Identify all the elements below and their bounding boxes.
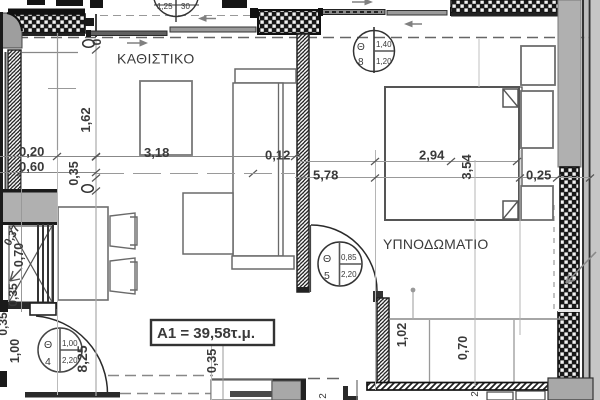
svg-text:1,20: 1,20	[376, 57, 392, 66]
svg-text:0,70: 0,70	[12, 243, 26, 267]
svg-text:0,20: 0,20	[19, 144, 44, 159]
svg-text:0,35: 0,35	[205, 349, 219, 373]
svg-text:ΚΑΘΙΣΤΙΚΟ: ΚΑΘΙΣΤΙΚΟ	[117, 51, 195, 67]
svg-text:5,78: 5,78	[313, 168, 338, 183]
svg-text:4: 4	[45, 356, 51, 368]
svg-text:0,60: 0,60	[19, 159, 44, 174]
svg-text:Θ: Θ	[44, 339, 52, 351]
svg-text:8: 8	[358, 57, 364, 68]
svg-text:2,94: 2,94	[419, 148, 445, 163]
svg-text:3,18: 3,18	[144, 145, 169, 160]
svg-text:0,85: 0,85	[341, 253, 357, 262]
svg-text:1,62: 1,62	[78, 107, 93, 132]
svg-text:30: 30	[181, 2, 190, 11]
svg-text:Θ: Θ	[357, 42, 365, 53]
svg-text:0,35: 0,35	[6, 283, 20, 307]
svg-text:1,40: 1,40	[376, 40, 392, 49]
svg-text:0,35: 0,35	[67, 161, 81, 185]
svg-text:3,54: 3,54	[459, 154, 474, 180]
svg-text:0,25: 0,25	[526, 168, 551, 183]
svg-text:8,25: 8,25	[74, 345, 90, 372]
svg-text:ΥΠΝΟΔΩΜΑΤΙΟ: ΥΠΝΟΔΩΜΑΤΙΟ	[383, 236, 488, 252]
svg-text:0,35: 0,35	[0, 312, 10, 336]
svg-text:2: 2	[470, 391, 481, 397]
svg-text:Θ: Θ	[323, 253, 331, 265]
svg-text:1,02: 1,02	[395, 323, 409, 347]
svg-text:2,20: 2,20	[341, 270, 357, 279]
svg-text:1,00: 1,00	[8, 339, 22, 363]
svg-text:0: 0	[90, 38, 104, 45]
svg-text:5: 5	[324, 270, 330, 282]
svg-text:1,25: 1,25	[157, 2, 173, 11]
svg-text:A1 = 39,58τ.μ.: A1 = 39,58τ.μ.	[157, 325, 255, 342]
svg-text:0,12: 0,12	[265, 148, 290, 163]
svg-text:0,70: 0,70	[456, 336, 470, 360]
svg-text:2: 2	[318, 393, 329, 399]
